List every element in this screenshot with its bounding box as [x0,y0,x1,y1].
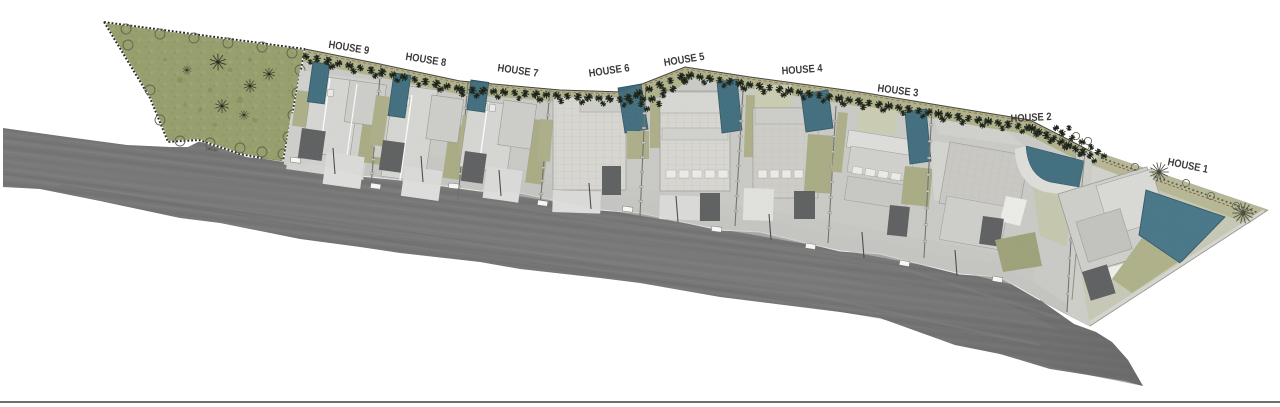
svg-text:HOUSE 2: HOUSE 2 [1010,111,1052,125]
